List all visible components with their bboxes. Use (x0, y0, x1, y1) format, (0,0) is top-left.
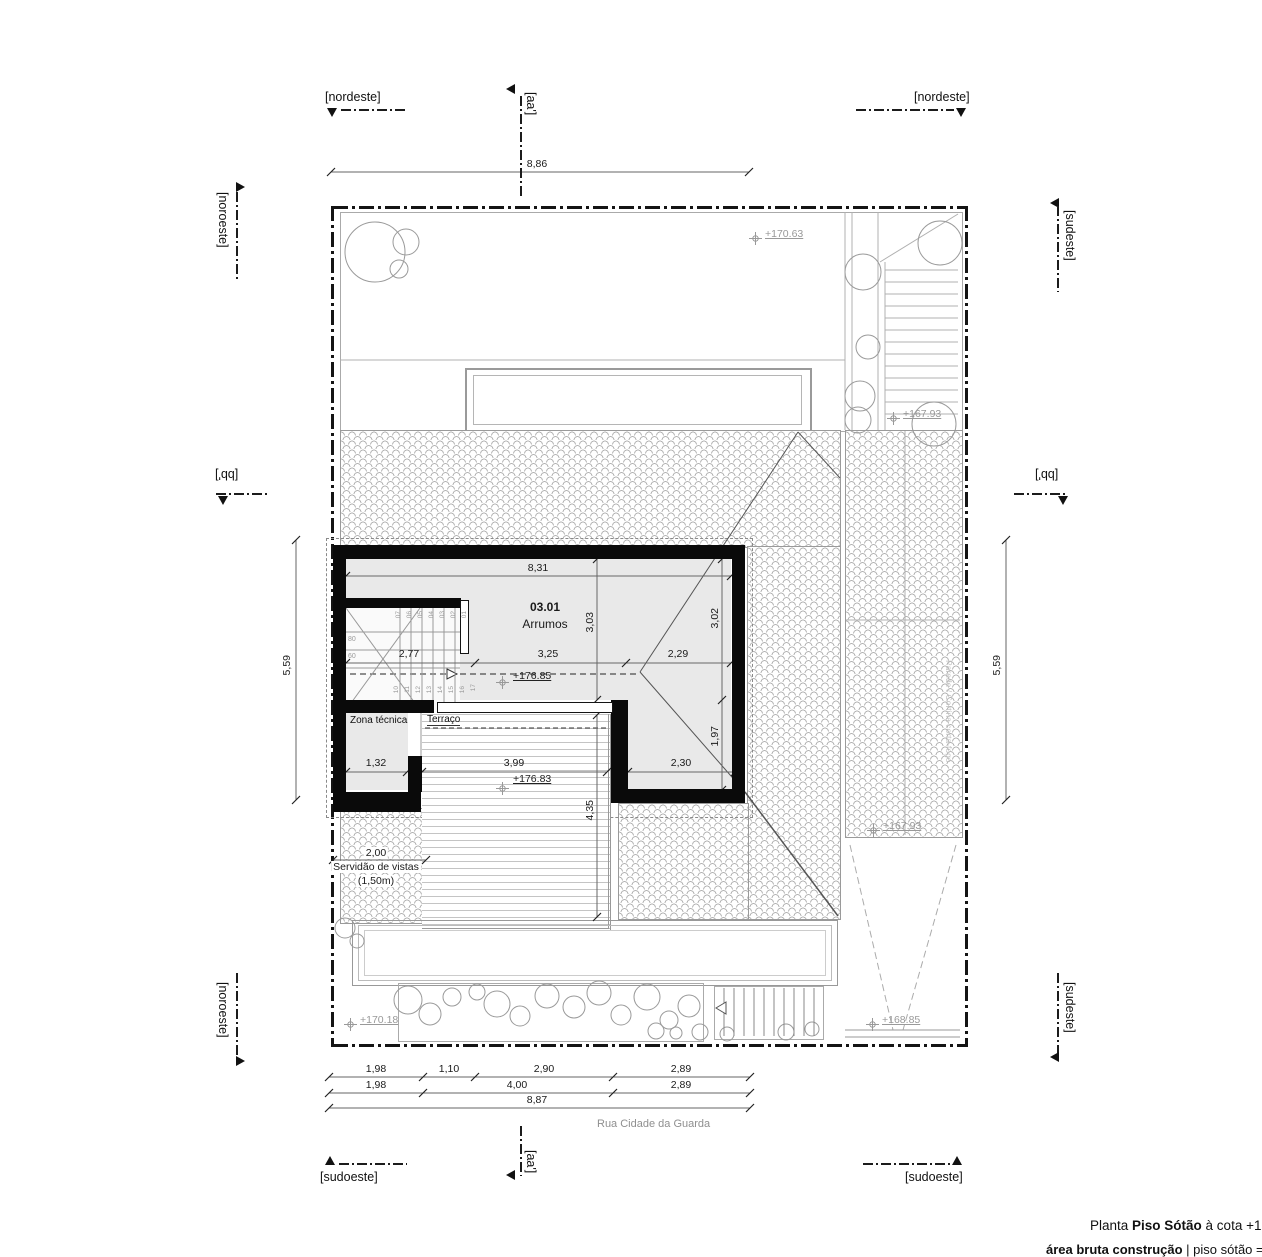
tread-number: 16 (460, 686, 467, 693)
dim-stair-w: 2,77 (399, 648, 419, 660)
tread-number: 02 (451, 611, 458, 618)
firewall-label: Parede / Cortina corta-fogo (944, 660, 954, 763)
elevation-stairs-top: +167.93 (903, 408, 941, 420)
dim-side-left: 5,59 (281, 655, 293, 675)
section-label-nordeste-left: [nordeste] (325, 90, 381, 104)
section-label-bb-right: [bb'] (1035, 468, 1058, 482)
dim-r2-2: 2,89 (671, 1079, 691, 1091)
sheet-subtitle-rest: | piso sótão = 03 (1183, 1242, 1262, 1257)
tread-number: 10 (394, 686, 401, 693)
attic-wall-top (333, 545, 745, 559)
section-label-aa-bottom: [aa'] (524, 1150, 538, 1173)
section-arrow-noroeste-top (236, 182, 245, 192)
dim-terrace-w: 3,99 (504, 757, 524, 769)
section-arrow-noroeste-bottom (236, 1056, 245, 1066)
section-arrow-nordeste-left (327, 108, 337, 117)
tread-number: 03 (440, 611, 447, 618)
stair-width-60: 60 (348, 653, 356, 660)
section-label-sudeste-top: [sudeste] (1063, 210, 1077, 261)
dim-attic-mid: 3,25 (538, 648, 558, 660)
section-arrow-sudoeste-right (952, 1156, 962, 1165)
dim-total: 8,87 (527, 1094, 547, 1106)
elevation-marker-terrace (496, 782, 509, 795)
tread-number: 13 (427, 686, 434, 693)
section-line-aa-bottom (520, 1126, 522, 1176)
attic-wall-left (333, 545, 346, 812)
tread-number: 11 (405, 686, 412, 693)
tread-number: 12 (416, 686, 423, 693)
section-line-sudoeste-right (863, 1163, 951, 1165)
attic-wall-bottom-left (333, 792, 421, 812)
room-number: 03.01 (530, 600, 560, 614)
zona-wall-top (333, 700, 434, 713)
section-line-bb-right (1014, 493, 1068, 495)
elevation-marker-roof-right (867, 824, 880, 837)
dim-r1-0: 1,98 (366, 1063, 386, 1075)
section-label-bb-left: [bb'] (215, 468, 238, 482)
section-line-sudeste-bottom (1057, 973, 1059, 1059)
dim-r1-3: 2,89 (671, 1063, 691, 1075)
dim-terrace-h: 4,35 (584, 800, 596, 820)
elevation-garden-bottom: +170.18 (360, 1014, 398, 1026)
section-label-sudoeste-right: [sudoeste] (905, 1170, 963, 1184)
section-label-sudoeste-left: [sudoeste] (320, 1170, 378, 1184)
tread-number: 15 (449, 686, 456, 693)
terraco-label: Terraço (427, 714, 460, 726)
elevation-roof-right: +167.93 (883, 820, 921, 832)
section-label-sudeste-bottom: [sudeste] (1063, 982, 1077, 1033)
dim-attic-right: 3,02 (709, 608, 721, 628)
section-arrow-aa-top (506, 84, 515, 94)
stair-window (460, 600, 469, 654)
plan-linework (0, 0, 1262, 1256)
section-line-aa-top (520, 96, 522, 196)
dim-r2-1: 4,00 (507, 1079, 527, 1091)
section-label-noroeste-top: [noroeste] (216, 192, 230, 248)
elevation-marker-ramp (866, 1018, 879, 1031)
sheet-title-name: Piso Sótão (1132, 1218, 1202, 1233)
section-arrow-bb-right (1058, 496, 1068, 505)
elevation-ramp: +168.85 (882, 1014, 920, 1026)
dim-lower-room: 2,30 (671, 757, 691, 769)
tread-number: 14 (438, 686, 445, 693)
tread-number: 17 (471, 684, 478, 691)
section-arrow-aa-bottom (506, 1170, 515, 1180)
terrace-window (437, 702, 613, 713)
sheet-title: Planta Piso Sótão à cota +17 (1090, 1218, 1262, 1233)
floor-plan-sheet: { "colors": {"wall": "#0a0a0a", "floor":… (0, 0, 1262, 1256)
section-line-sudeste-top (1057, 206, 1059, 292)
elevation-marker-top-garden (749, 232, 762, 245)
tread-number: 07 (396, 611, 403, 618)
dim-servidao: 2,00 (364, 847, 388, 859)
elevation-top-garden: +170.63 (765, 228, 803, 240)
stair-width-80: 80 (348, 636, 356, 643)
street-name: Rua Cidade da Guarda (597, 1118, 710, 1130)
section-label-aa-top: [aa'] (524, 92, 538, 115)
dim-attic-width: 8,31 (528, 562, 548, 574)
dim-r1-1: 1,10 (439, 1063, 459, 1075)
tread-number: 04 (429, 611, 436, 618)
sheet-title-prefix: Planta (1090, 1218, 1132, 1233)
stair-wall (344, 598, 461, 608)
dim-attic-left: 3,03 (584, 612, 596, 632)
elevation-marker-stairs-top (887, 412, 900, 425)
section-label-nordeste-right: [nordeste] (914, 90, 970, 104)
dim-attic-r: 2,29 (668, 648, 688, 660)
section-arrow-sudeste-bottom (1050, 1052, 1059, 1062)
sheet-subtitle-bold: área bruta construção (1046, 1242, 1183, 1257)
elevation-marker-garden-bottom (344, 1018, 357, 1031)
section-line-sudoeste-left (339, 1163, 407, 1165)
section-arrow-nordeste-right (956, 108, 966, 117)
section-line-nordeste-right (856, 109, 954, 111)
elevation-attic: +176.85 (513, 670, 551, 682)
zona-wall-piece (408, 756, 422, 792)
elevation-terrace: +176.83 (513, 773, 551, 785)
lower-room-wall-bottom (611, 789, 745, 803)
section-line-noroeste-bottom (236, 973, 238, 1059)
section-line-nordeste-left (341, 109, 407, 111)
section-line-bb-left (216, 493, 270, 495)
servidao-label-2: (1,50m) (356, 875, 396, 887)
sheet-subtitle: área bruta construção | piso sótão = 03 (1046, 1242, 1262, 1257)
zona-tecnica-label: Zona técnica (350, 715, 407, 726)
attic-wall-right (732, 545, 745, 803)
dim-zona: 1,32 (366, 757, 386, 769)
section-arrow-bb-left (218, 496, 228, 505)
section-label-noroeste-bottom: [noroeste] (216, 982, 230, 1038)
dim-side-right: 5,59 (991, 655, 1003, 675)
sheet-title-suffix: à cota +17 (1202, 1218, 1262, 1233)
dim-attic-lower-right: 1,97 (709, 726, 721, 746)
room-name: Arrumos (522, 617, 567, 631)
elevation-marker-attic (496, 676, 509, 689)
section-arrow-sudoeste-left (325, 1156, 335, 1165)
servidao-label-1: Servidão de vistas (331, 861, 421, 873)
dim-site-top: 8,86 (527, 158, 547, 170)
tread-number: 05 (418, 611, 425, 618)
section-line-noroeste-top (236, 192, 238, 282)
dim-r1-2: 2,90 (534, 1063, 554, 1075)
tread-number: 06 (407, 611, 414, 618)
dim-r2-0: 1,98 (366, 1079, 386, 1091)
tread-number: 01 (462, 611, 469, 618)
lower-room-wall-left (611, 700, 628, 792)
